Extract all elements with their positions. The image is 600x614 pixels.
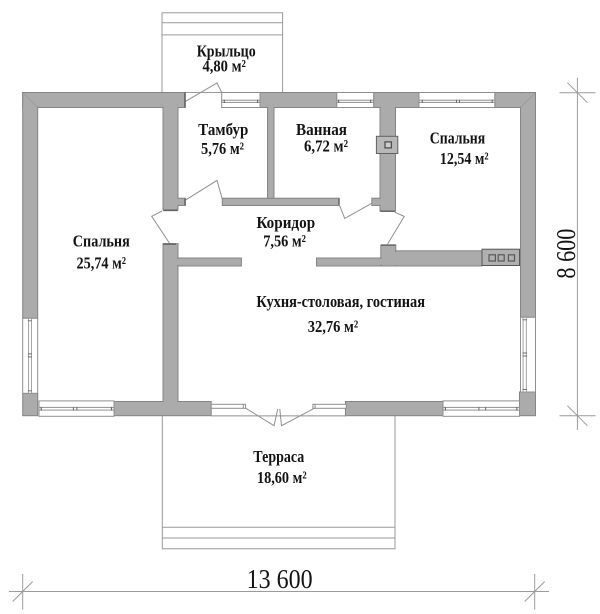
svg-text:Кухня-столовая, гостиная: Кухня-столовая, гостиная — [256, 292, 425, 311]
svg-text:4,80 м²: 4,80 м² — [202, 57, 246, 76]
svg-text:Коридор: Коридор — [256, 213, 315, 232]
svg-text:18,60 м²: 18,60 м² — [257, 468, 307, 487]
svg-text:5,76 м²: 5,76 м² — [201, 139, 244, 158]
svg-text:Спальня: Спальня — [430, 129, 485, 148]
svg-text:8 600: 8 600 — [551, 229, 581, 279]
svg-text:13 600: 13 600 — [247, 564, 313, 594]
svg-text:Спальня: Спальня — [73, 232, 130, 251]
svg-text:Терраса: Терраса — [253, 447, 304, 466]
svg-text:12,54 м²: 12,54 м² — [440, 149, 489, 168]
svg-text:32,76 м²: 32,76 м² — [308, 317, 359, 336]
svg-text:7,56 м²: 7,56 м² — [263, 232, 306, 251]
svg-text:Тамбур: Тамбур — [198, 120, 248, 139]
svg-text:6,72 м²: 6,72 м² — [304, 136, 348, 155]
svg-text:25,74 м²: 25,74 м² — [77, 254, 127, 273]
